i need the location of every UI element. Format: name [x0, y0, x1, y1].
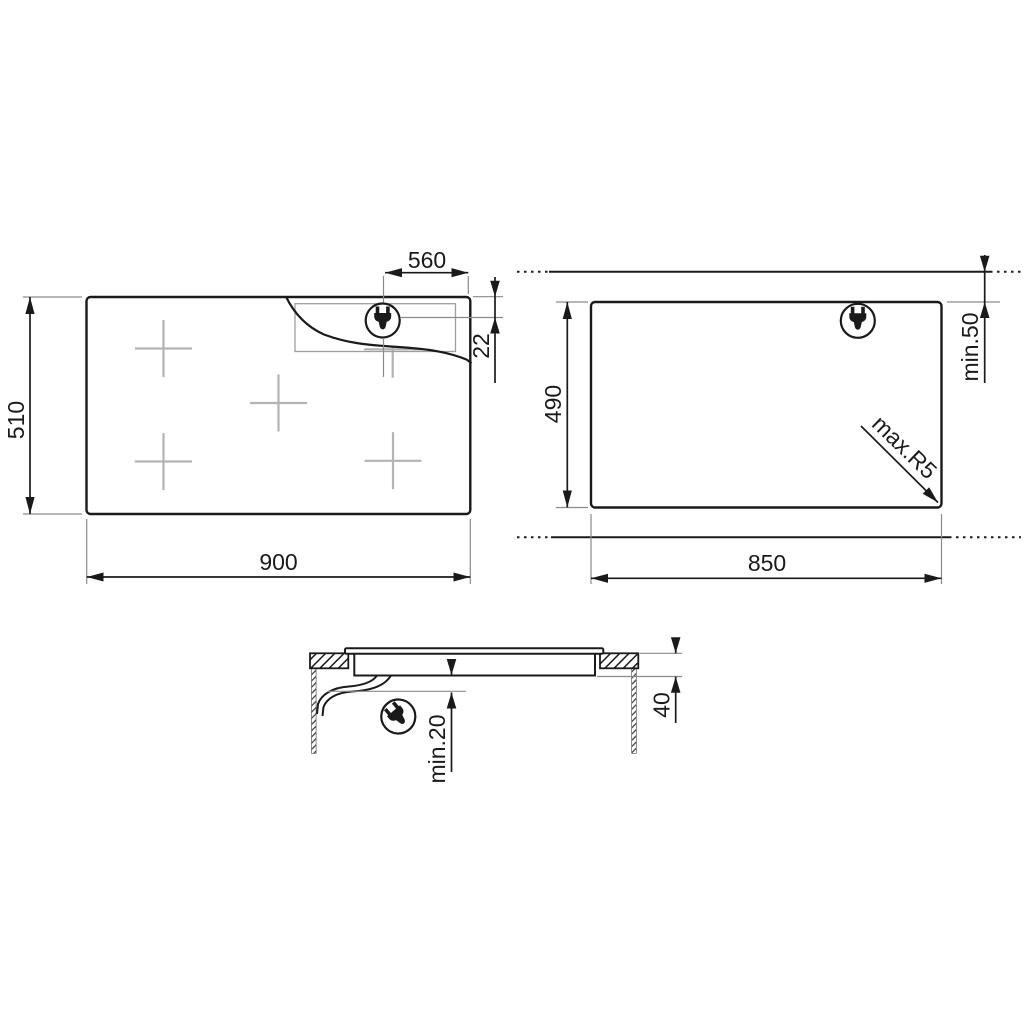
power-plug-icon-side [374, 693, 422, 741]
dim-label-cutout-width: 850 [748, 550, 786, 576]
power-plug-icon-cutout [841, 304, 875, 338]
dim-label-plug-inset: 22 [468, 333, 494, 359]
dim-corner-radius: max.R5 [861, 410, 942, 502]
dim-plug-inset: 22 [468, 277, 500, 383]
drawing-svg: 560 22 510 900 [0, 0, 1024, 1024]
hob-top-view: 560 22 510 900 [3, 247, 503, 584]
dim-label-cutout-depth: 490 [540, 385, 566, 423]
worktop-section-left [310, 653, 348, 668]
dim-label-clearance-below: min.20 [424, 714, 450, 783]
dim-label-corner-radius: max.R5 [867, 410, 942, 484]
cutout-outline [591, 302, 942, 508]
dim-label-recess-depth: 40 [649, 692, 675, 718]
mains-cable [317, 676, 391, 717]
dim-recess-depth: 40 [649, 637, 681, 723]
dim-label-plug-offset: 560 [408, 247, 446, 273]
hob-glass-section [345, 648, 603, 653]
dim-plug-offset: 560 [385, 247, 468, 273]
installation-drawing: 560 22 510 900 [0, 0, 1024, 1024]
worktop-cutout-view: 490 850 min.50 max.R5 [517, 255, 1021, 584]
dim-label-hob-width: 900 [259, 549, 297, 575]
dim-clearance-below: min.20 [424, 659, 456, 784]
worktop-edge-lines [517, 272, 1021, 538]
worktop-section-right [600, 653, 638, 668]
dim-label-hob-depth: 510 [3, 401, 29, 439]
power-plug-icon [366, 304, 400, 338]
cabinet-panel-left [312, 668, 317, 753]
hob-body-section [354, 654, 595, 676]
side-section-view: min.20 40 [310, 637, 682, 783]
cutout-extension-lines [556, 302, 1000, 584]
dim-cutout-depth: 490 [540, 302, 567, 508]
dim-label-rear-clearance: min.50 [957, 312, 983, 381]
dim-hob-width: 900 [87, 549, 471, 577]
cabinet-panel-right [632, 668, 637, 753]
dim-hob-depth: 510 [3, 297, 30, 514]
dim-rear-clearance: min.50 [957, 255, 990, 383]
dim-cutout-width: 850 [591, 550, 942, 578]
